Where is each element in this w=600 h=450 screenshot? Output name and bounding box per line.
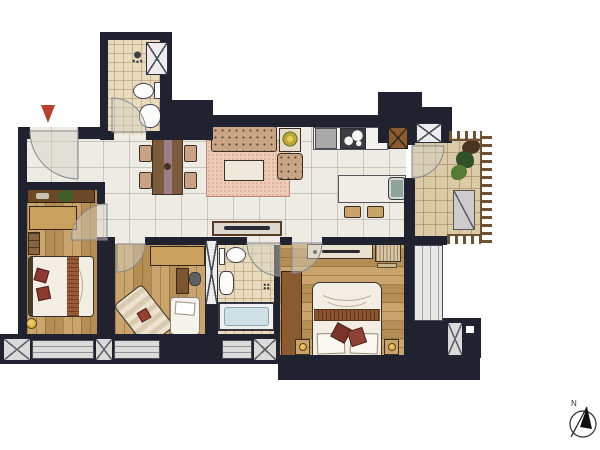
door-swing-overlay: N xyxy=(0,0,600,450)
compass-icon: N xyxy=(570,399,596,437)
door-arc-balcony xyxy=(412,146,444,178)
door-arc-entry xyxy=(30,131,78,179)
door-arc-bedroom-2 xyxy=(117,244,145,272)
door-arc-bedroom-1 xyxy=(71,204,107,240)
floor-plan-canvas: N xyxy=(0,0,600,450)
door-arc-master xyxy=(292,243,322,273)
door-arc-bathroom-2 xyxy=(247,243,280,276)
compass-label: N xyxy=(571,399,577,408)
door-arc-bathroom-1 xyxy=(112,98,146,132)
